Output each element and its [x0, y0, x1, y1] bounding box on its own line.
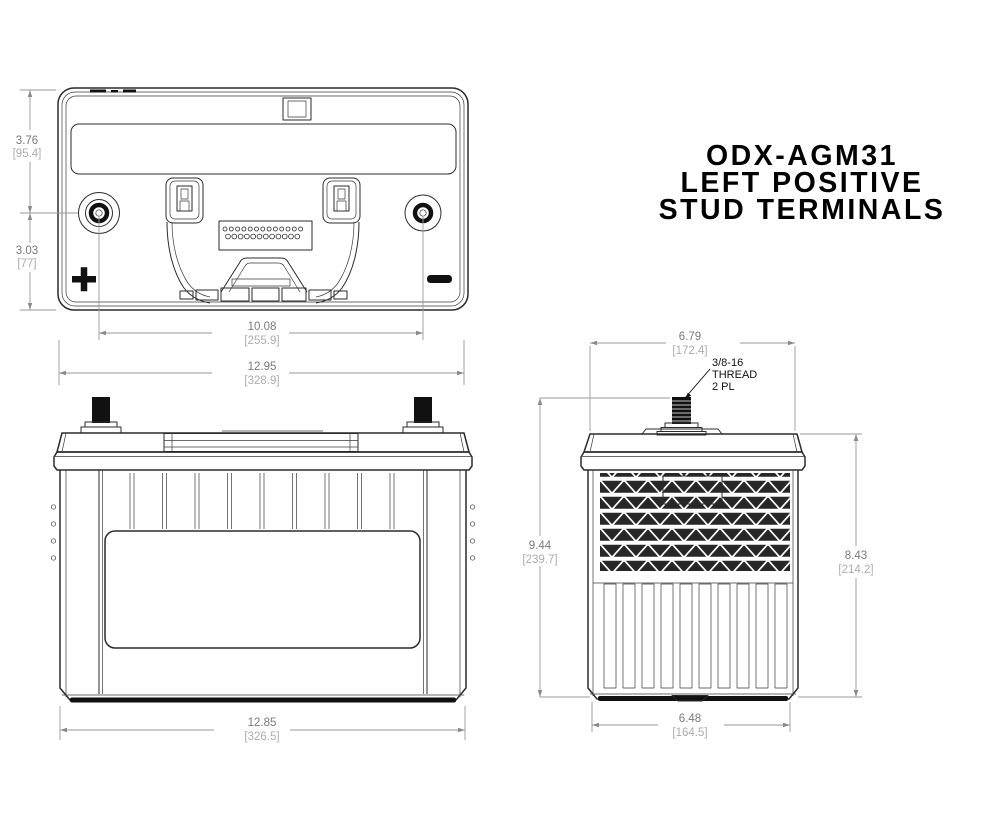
front-right-stud-terminal [403, 397, 443, 433]
front-label-area [105, 531, 420, 648]
dim-mm: [326.5] [244, 731, 279, 743]
front-ribs [130, 473, 394, 529]
handle-base-pads [180, 288, 347, 301]
dim-value: 6.79 [679, 331, 701, 343]
side-view: 3/8-16 THREAD 2 PL [581, 357, 805, 701]
vent-hole-plate [219, 221, 312, 250]
top-view [58, 88, 468, 310]
dim-top-height-upper: 3.76 [95.4] [13, 90, 78, 310]
dim-value: 12.85 [248, 717, 277, 729]
dim-case-height: 8.43 [214.2] [798, 434, 874, 697]
thread-note-line1: 3/8-16 [712, 357, 743, 369]
dim-value: 9.44 [529, 540, 552, 552]
dim-mm: [239.7] [522, 554, 557, 566]
front-case [51, 470, 474, 703]
dim-value: 3.03 [16, 245, 38, 257]
dim-value: 6.48 [679, 713, 701, 725]
front-lid [54, 431, 472, 470]
dim-terminal-spacing: 10.08 [255.9] [99, 217, 423, 347]
negative-terminal-marker-icon [427, 275, 452, 283]
title-block: ODX-AGM31 LEFT POSITIVE STUD TERMINALS [659, 140, 946, 226]
dim-front-base-width: 12.85 [326.5] [60, 706, 465, 743]
dim-overall-width: 12.95 [328.9] [59, 340, 464, 387]
dim-mm: [95.4] [13, 148, 42, 160]
top-label-recess [71, 124, 456, 174]
embossed-marks [90, 90, 136, 93]
dim-top-height-lower: 3.03 [77] [16, 213, 38, 310]
thread-note-line3: 2 PL [712, 381, 735, 393]
thread-callout: 3/8-16 THREAD 2 PL [685, 357, 757, 400]
side-lattice-pattern [600, 473, 790, 571]
dim-mm: [214.2] [838, 564, 873, 576]
front-left-stud-terminal [81, 397, 121, 433]
dim-mm: [77] [17, 258, 36, 270]
positive-terminal-marker-icon [72, 267, 96, 291]
dim-side-base-width: 6.48 [164.5] [592, 702, 790, 739]
handle-assembly [166, 178, 360, 303]
front-view [51, 397, 474, 703]
dim-value: 8.43 [845, 550, 867, 562]
dim-mm: [328.9] [244, 375, 279, 387]
side-case [588, 470, 798, 701]
title-terminal-type: STUD TERMINALS [659, 194, 946, 226]
dim-value: 12.95 [248, 361, 277, 373]
dim-mm: [172.4] [672, 345, 707, 357]
dim-mm: [164.5] [672, 727, 707, 739]
dim-mm: [255.9] [244, 335, 279, 347]
dim-value: 3.76 [16, 135, 38, 147]
dim-side-top-width: 6.79 [172.4] [590, 331, 795, 431]
thread-note-line2: THREAD [712, 369, 757, 381]
vent-tab [283, 98, 311, 120]
dim-value: 10.08 [248, 321, 277, 333]
battery-drawing-canvas: 3/8-16 THREAD 2 PL 3.76 [95.4] 3.03 [77] [0, 0, 1000, 833]
side-ribs [604, 584, 787, 688]
